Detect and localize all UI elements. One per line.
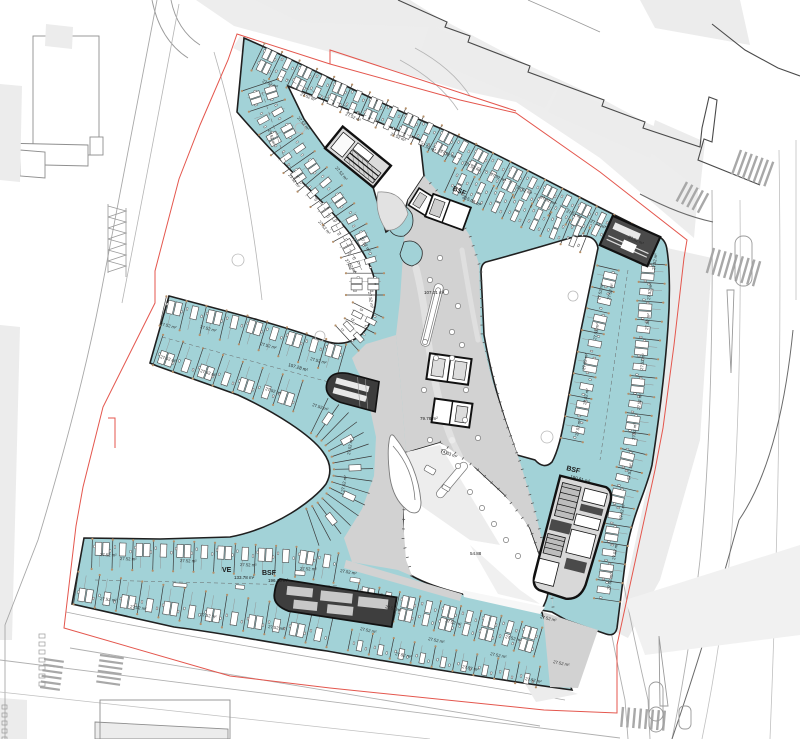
svg-text:54.88: 54.88: [470, 551, 482, 556]
svg-text:196.39 m²: 196.39 m²: [268, 578, 289, 583]
svg-text:VE: VE: [222, 567, 232, 574]
svg-text:BSF: BSF: [262, 570, 277, 577]
svg-text:133.78 m²: 133.78 m²: [234, 575, 255, 580]
svg-text:27.52 m²: 27.52 m²: [180, 558, 197, 564]
svg-text:27.52 m²: 27.52 m²: [240, 562, 257, 568]
svg-text:107.01 m²: 107.01 m²: [424, 290, 445, 295]
svg-text:27.52 m²: 27.52 m²: [120, 556, 137, 562]
svg-text:79.78 m²: 79.78 m²: [420, 416, 438, 421]
svg-text:27.52 m²: 27.52 m²: [300, 566, 317, 572]
svg-text:27.52 m²: 27.52 m²: [100, 552, 117, 558]
